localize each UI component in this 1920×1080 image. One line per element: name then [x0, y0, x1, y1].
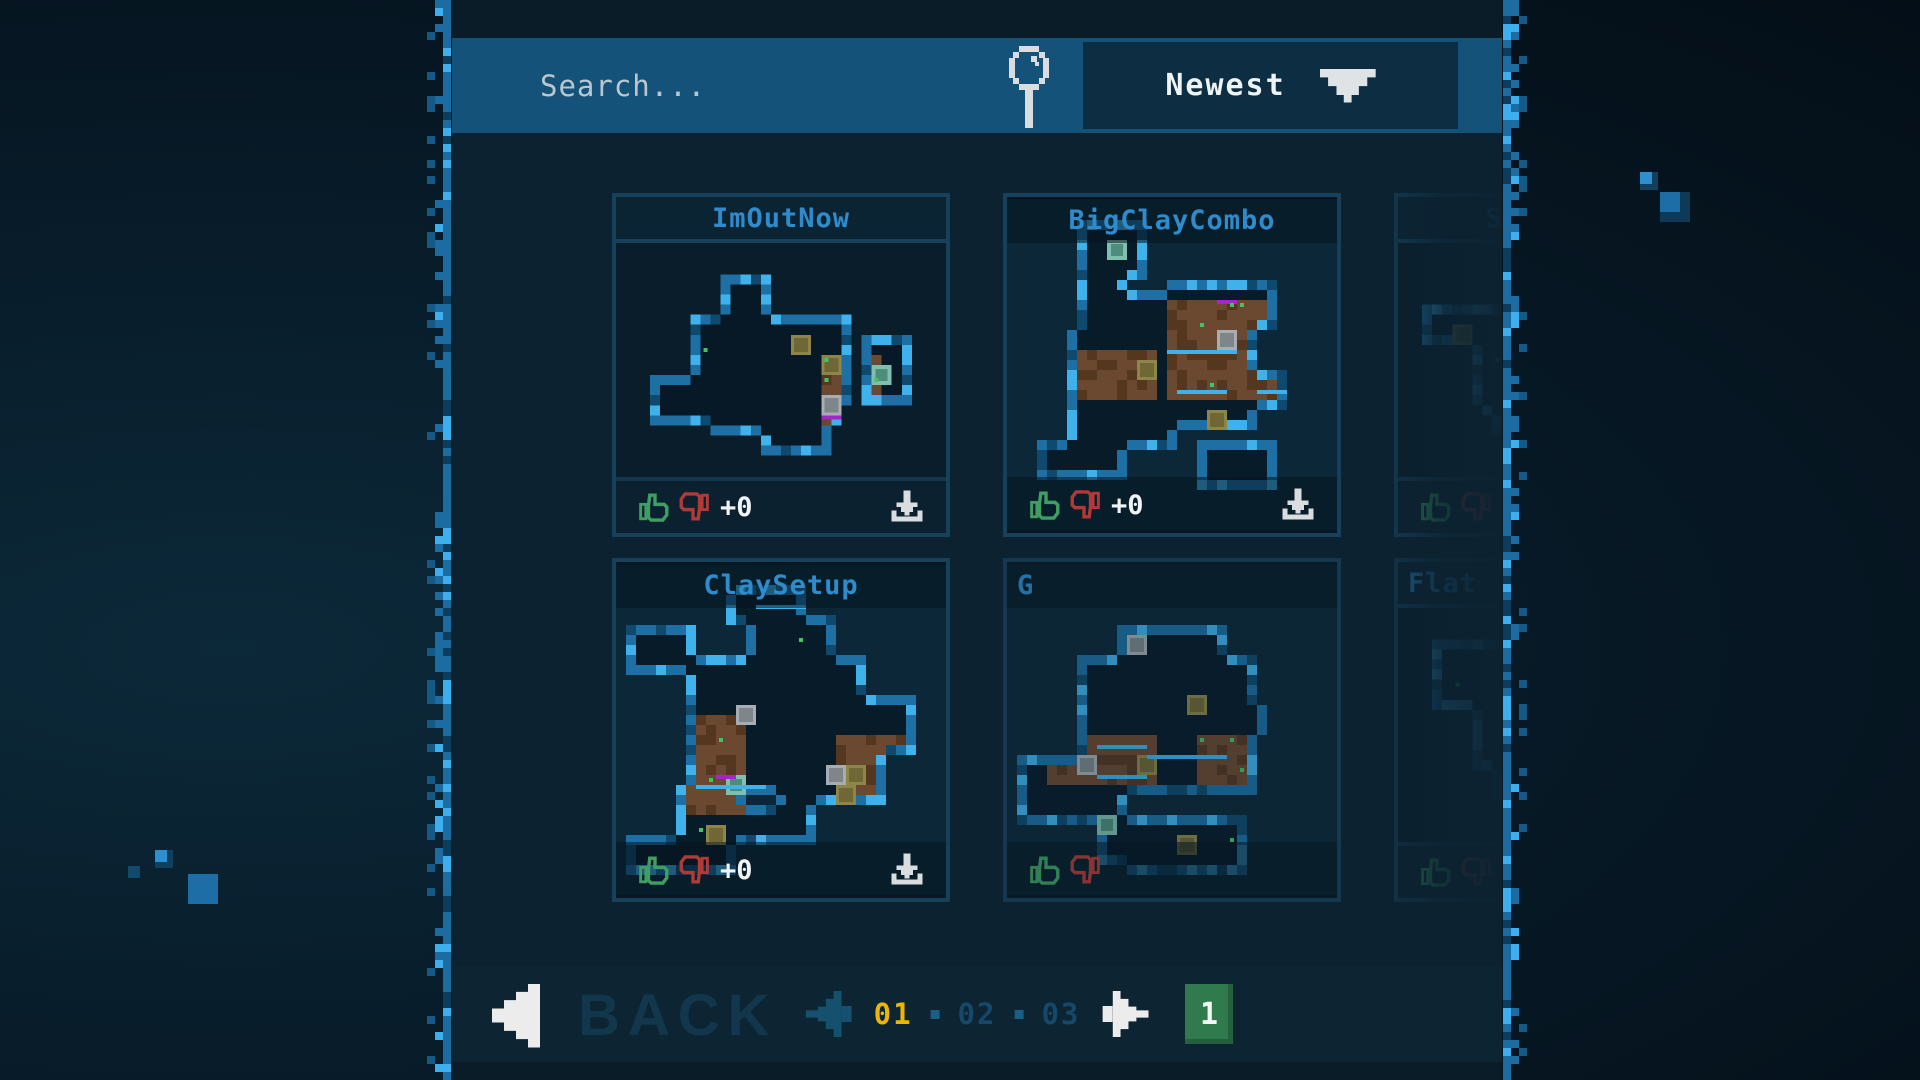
level-card[interactable]: BigClayCombo+0: [1003, 193, 1341, 537]
next-page-arrow[interactable]: [1102, 991, 1148, 1037]
search-icon[interactable]: [1003, 42, 1057, 130]
vote-count: +0: [720, 492, 753, 523]
thumbs-down-icon: [1067, 488, 1101, 522]
right-arrow-icon: [1112, 991, 1148, 1037]
level-card[interactable]: Flat: [1394, 558, 1502, 902]
level-title: SmallCave: [1485, 203, 1502, 234]
vote-count: +0: [1111, 490, 1144, 521]
download-icon: [888, 490, 926, 524]
level-card-header: G: [1007, 562, 1337, 608]
page-separator-dot: [931, 1010, 940, 1019]
level-browser-panel: Newest ImOutNow+0BigClayCombo+0SmallCave…: [452, 0, 1502, 1080]
level-title: ImOutNow: [712, 203, 850, 234]
level-card-header: Flat: [1398, 562, 1502, 608]
thumbs-up-icon: [638, 853, 672, 887]
download-button[interactable]: [888, 853, 926, 887]
page-number-01[interactable]: 01: [874, 997, 913, 1031]
level-card-footer: +0: [616, 477, 946, 533]
thumbs-down-icon: [676, 490, 710, 524]
decor-pixel-square: [155, 850, 173, 868]
thumbs-up-icon: [1420, 490, 1454, 524]
download-icon: [888, 853, 926, 887]
level-card[interactable]: ImOutNow+0: [612, 193, 950, 537]
decor-pixel-square: [188, 874, 218, 904]
level-card[interactable]: ClaySetup+0: [612, 558, 950, 902]
level-card[interactable]: G: [1003, 558, 1341, 902]
dislike-button[interactable]: [676, 490, 710, 524]
sort-dropdown[interactable]: Newest: [1083, 42, 1458, 129]
level-title: BigClayCombo: [1068, 205, 1275, 236]
level-card-footer: [1398, 842, 1502, 898]
like-button[interactable]: [638, 490, 672, 524]
thumbs-down-icon: [1067, 853, 1101, 887]
level-card-footer: +0: [1007, 477, 1337, 533]
thumbs-up-icon: [1029, 488, 1063, 522]
download-button[interactable]: [1279, 488, 1317, 522]
arrow-stem: [842, 1006, 852, 1022]
panel-bottom-strip: [452, 1062, 1502, 1080]
level-card[interactable]: SmallCave+0: [1394, 193, 1502, 537]
search-input[interactable]: [538, 68, 1003, 104]
level-map-preview: [1412, 616, 1502, 844]
dislike-button[interactable]: [1067, 488, 1101, 522]
level-map-preview: [1412, 251, 1502, 479]
level-card-footer: +0: [1398, 477, 1502, 533]
selected-count-badge: 1: [1185, 984, 1233, 1044]
level-card-footer: +0: [616, 842, 946, 898]
level-map-preview: [630, 251, 932, 479]
pixel-border-right: [1501, 0, 1527, 1080]
level-title: ClaySetup: [703, 570, 858, 601]
like-button[interactable]: [1420, 855, 1454, 889]
dislike-button[interactable]: [1067, 853, 1101, 887]
thumbs-down-icon: [1458, 490, 1492, 524]
download-button[interactable]: [888, 490, 926, 524]
thumbs-up-icon: [638, 490, 672, 524]
back-label: BACK: [578, 982, 778, 1049]
level-card-header: SmallCave: [1398, 197, 1502, 243]
panel-top-strip: [452, 0, 1502, 38]
pixel-border-left: [427, 0, 453, 1080]
level-card-header: ImOutNow: [616, 197, 946, 243]
like-button[interactable]: [638, 853, 672, 887]
chevron-down-icon: [1320, 69, 1376, 103]
prev-page-arrow[interactable]: [806, 991, 852, 1037]
sort-value-label: Newest: [1165, 68, 1285, 103]
decor-pixel-square: [1660, 192, 1690, 222]
download-icon: [1279, 488, 1317, 522]
level-title: G: [1017, 570, 1034, 601]
level-card-header: ClaySetup: [616, 562, 946, 608]
page-number-list: 010203: [874, 997, 1081, 1031]
bottom-nav-bar: BACK 010203 1: [452, 966, 1502, 1062]
thumbs-down-icon: [1458, 855, 1492, 889]
back-button[interactable]: BACK: [492, 982, 778, 1049]
like-button[interactable]: [1029, 853, 1063, 887]
thumbs-down-icon: [676, 853, 710, 887]
left-arrow-icon: [806, 991, 842, 1037]
thumbs-up-icon: [1420, 855, 1454, 889]
dislike-button[interactable]: [1458, 490, 1492, 524]
page-number-03[interactable]: 03: [1041, 997, 1080, 1031]
dislike-button[interactable]: [676, 853, 710, 887]
search-header-bar: Newest: [452, 38, 1502, 133]
decor-pixel-square: [1640, 172, 1658, 190]
arrow-stem: [1102, 1006, 1112, 1022]
level-title: Flat: [1408, 568, 1477, 599]
pagination: 010203: [806, 966, 1149, 1062]
vote-count: +0: [720, 855, 753, 886]
dislike-button[interactable]: [1458, 855, 1492, 889]
like-button[interactable]: [1029, 488, 1063, 522]
back-arrow-icon: [492, 984, 540, 1048]
decor-pixel-square: [128, 866, 140, 878]
page-separator-dot: [1014, 1010, 1023, 1019]
page-number-02[interactable]: 02: [958, 997, 997, 1031]
level-card-header: BigClayCombo: [1007, 197, 1337, 243]
thumbs-up-icon: [1029, 853, 1063, 887]
level-card-footer: [1007, 842, 1337, 898]
like-button[interactable]: [1420, 490, 1454, 524]
level-card-grid: ImOutNow+0BigClayCombo+0SmallCave+0ClayS…: [612, 193, 1502, 902]
